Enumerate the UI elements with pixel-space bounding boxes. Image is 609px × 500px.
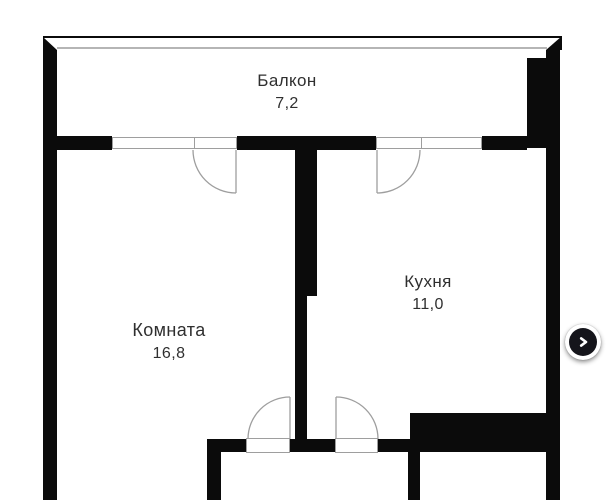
- balcony-name: Балкон: [257, 71, 316, 91]
- balcony-kitchen-door-arc: [377, 150, 420, 193]
- room-name: Комната: [132, 320, 205, 341]
- wall-corner-top-left: [43, 37, 57, 50]
- balcony-room-door-arc: [193, 150, 236, 193]
- wall-bath-left-vertical: [408, 448, 420, 500]
- balcony-area: 7,2: [257, 95, 316, 113]
- kitchen-name: Кухня: [404, 272, 452, 292]
- wall-bath-block: [410, 413, 558, 452]
- wall-corner-top-right: [546, 36, 562, 50]
- room-label-kitchen: Кухня 11,0: [404, 272, 452, 314]
- wall-partition-upper: [295, 150, 317, 296]
- kitchen-entry-door-arc: [336, 397, 378, 439]
- wall-partition-lower: [295, 296, 307, 439]
- wall-left-exterior: [43, 50, 57, 500]
- wall-balcony-bottom-seg1: [57, 136, 112, 150]
- wall-balcony-bottom-seg2: [237, 136, 376, 150]
- chevron-right-icon: [577, 336, 589, 348]
- wall-pillar-balcony-right: [527, 58, 560, 148]
- wall-balcony-bottom-seg3: [482, 136, 527, 150]
- balcony-window-strip-left: [112, 137, 237, 149]
- next-button[interactable]: [565, 324, 601, 360]
- balcony-outer-wall-top: [43, 36, 562, 38]
- kitchen-entry-threshold: [335, 438, 378, 453]
- room-entry-door-arc: [248, 397, 290, 439]
- room-label-room: Комната 16,8: [132, 320, 205, 363]
- wall-hall-seg2: [290, 439, 335, 452]
- balcony-window-strip-right: [376, 137, 482, 149]
- floorplan-canvas: Балкон 7,2 Комната 16,8 Кухня 11,0: [0, 0, 609, 500]
- kitchen-area: 11,0: [404, 296, 452, 314]
- wall-hall-seg3: [378, 439, 410, 452]
- window-frame-divider: [194, 138, 195, 148]
- balcony-inner-edge-line: [57, 47, 547, 49]
- room-area: 16,8: [132, 345, 205, 363]
- window-frame-divider: [421, 138, 422, 148]
- wall-hall-left-vertical: [207, 450, 221, 500]
- room-label-balcony: Балкон 7,2: [257, 71, 316, 113]
- next-button-circle: [569, 328, 597, 356]
- room-entry-threshold: [246, 438, 290, 453]
